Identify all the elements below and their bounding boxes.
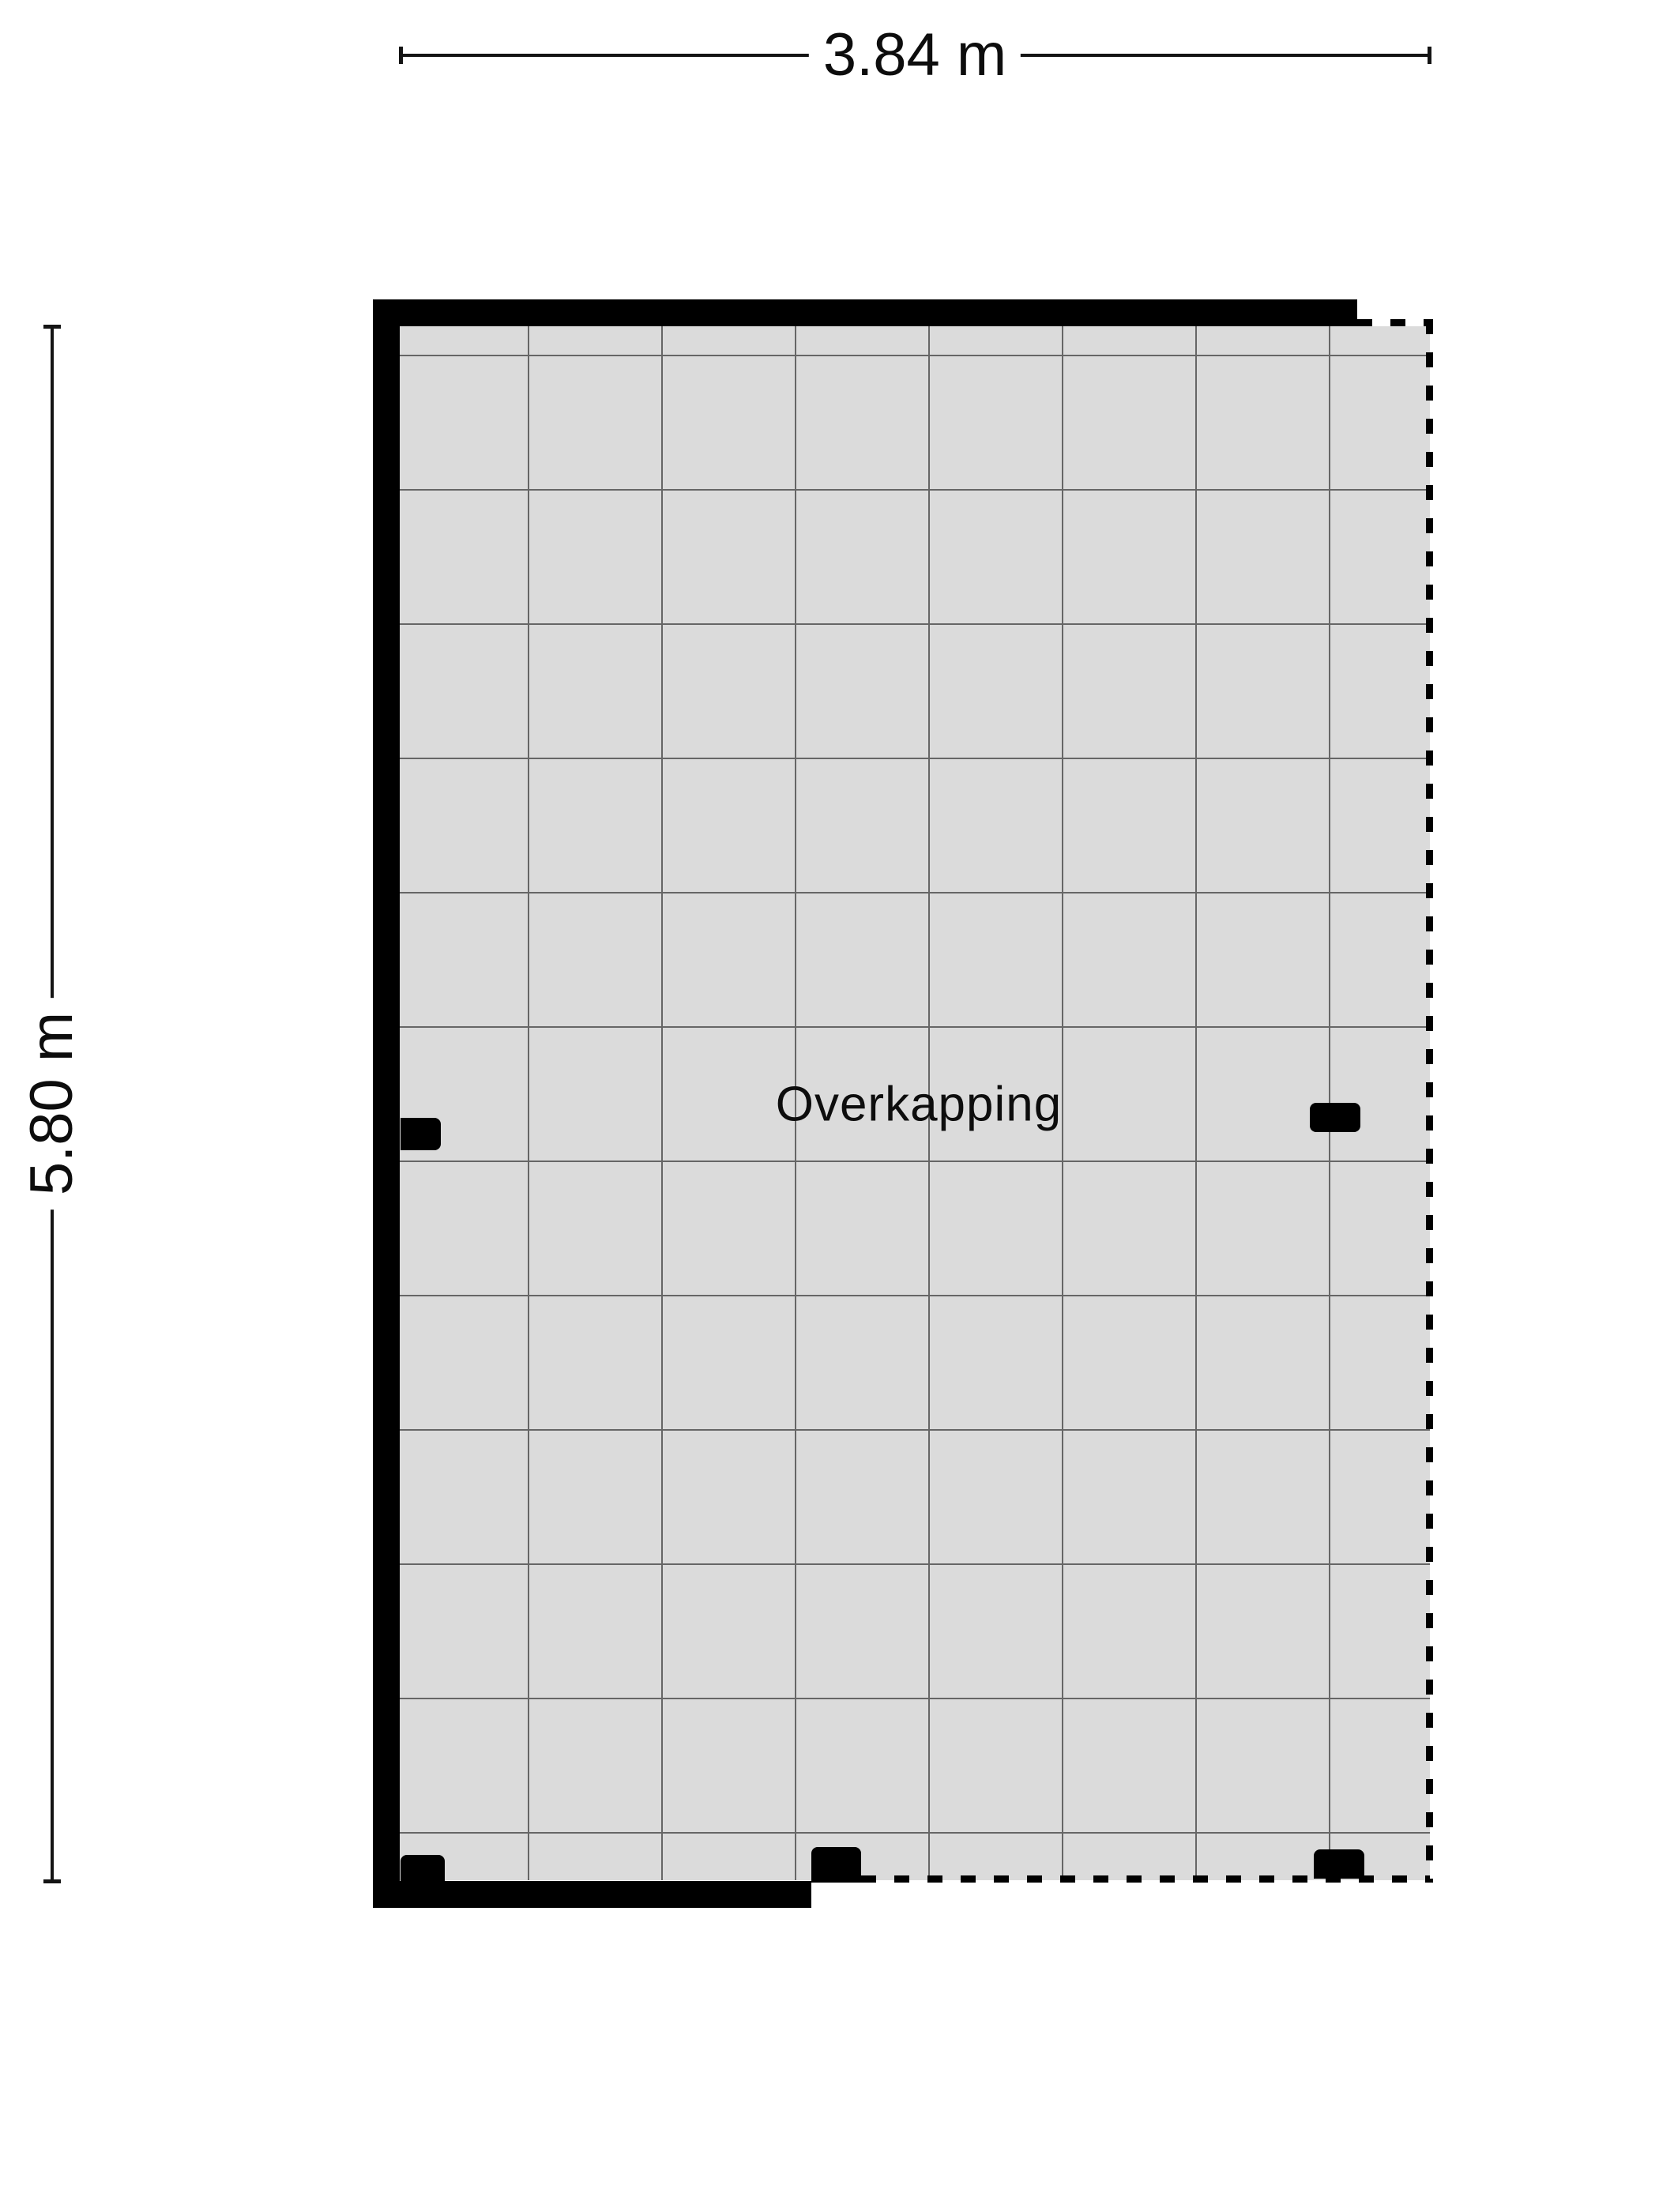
floorplan-canvas: 3.84 m 5.80 m Overkapping bbox=[0, 0, 1659, 2212]
dimension-top-tick-right bbox=[1428, 47, 1431, 64]
dashed-edge-top bbox=[1357, 319, 1430, 326]
dimension-top-label: 3.84 m bbox=[809, 23, 1021, 88]
dimension-left-tick-bottom bbox=[43, 1879, 61, 1883]
dimension-top-tick-left bbox=[399, 47, 403, 64]
post-bottom-right bbox=[1314, 1849, 1364, 1879]
dimension-left-label: 5.80 m bbox=[20, 998, 85, 1209]
post-mid-right bbox=[1310, 1103, 1360, 1132]
wall-top bbox=[373, 299, 1357, 326]
post-bottom-left bbox=[401, 1855, 445, 1881]
post-bottom-middle bbox=[811, 1847, 861, 1883]
wall-left bbox=[373, 299, 400, 1908]
room-label: Overkapping bbox=[776, 1077, 1063, 1133]
wall-bottom bbox=[373, 1881, 811, 1908]
dashed-edge-right bbox=[1426, 319, 1433, 1883]
post-mid-left bbox=[401, 1118, 441, 1150]
dimension-left-tick-top bbox=[43, 325, 61, 329]
